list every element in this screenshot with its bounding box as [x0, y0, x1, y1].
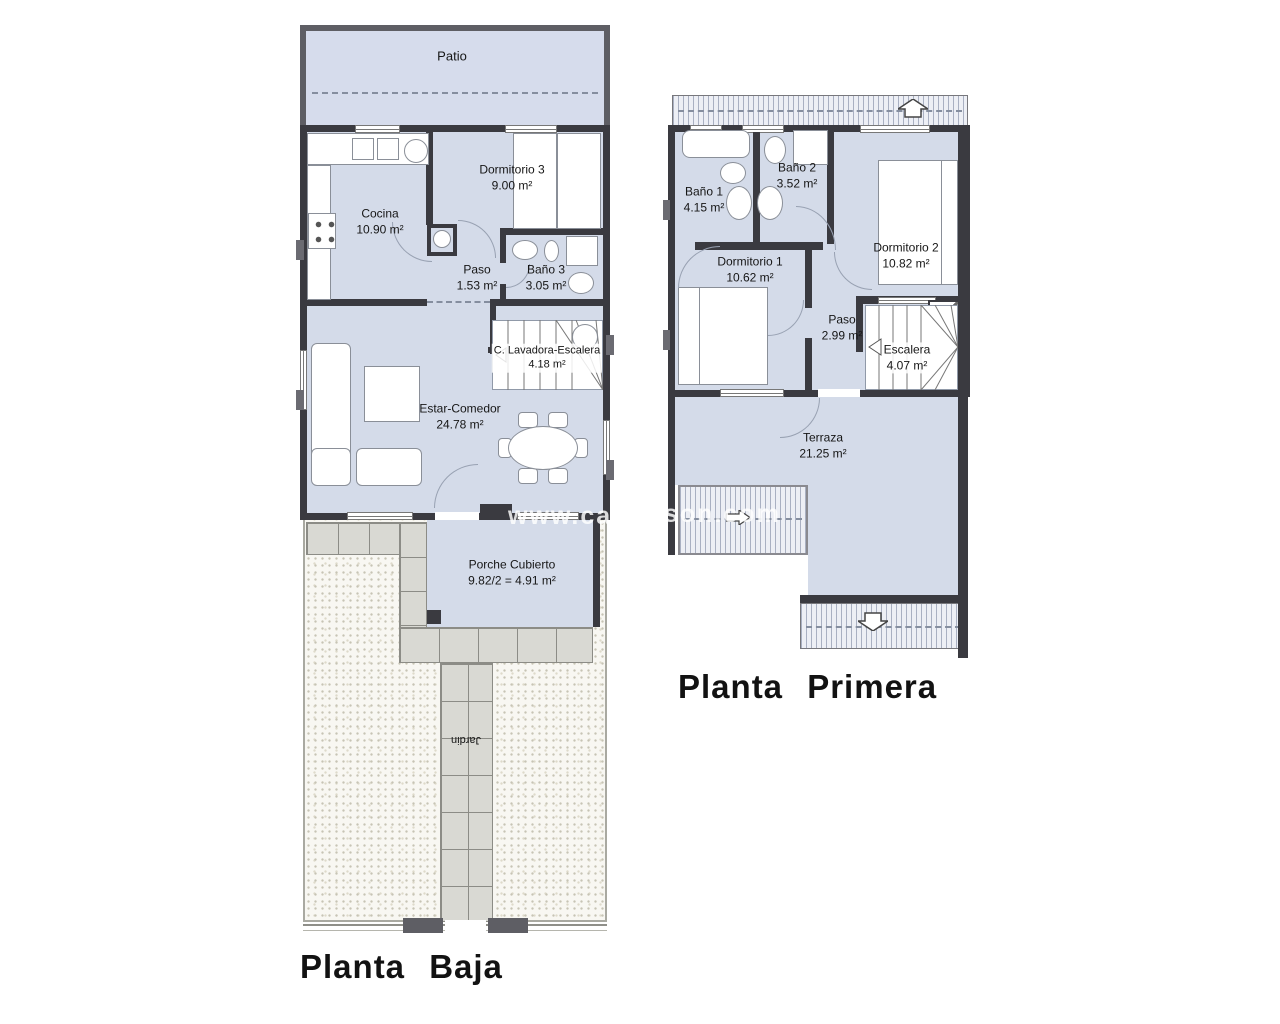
- gate-opening: [445, 920, 486, 931]
- door-opening: [818, 389, 860, 397]
- room-label-bano-3: Baño 3 3.05 m²: [526, 262, 567, 293]
- chair: [518, 468, 538, 484]
- boiler: [433, 230, 451, 248]
- sink: [726, 186, 752, 220]
- toilet: [568, 272, 594, 294]
- wall-pillar: [663, 200, 670, 220]
- patio-dashed-line: [312, 92, 598, 94]
- coffee-table: [364, 366, 420, 422]
- room-label-escalera: Escalera 4.07 m²: [882, 342, 933, 373]
- wall: [805, 250, 812, 308]
- wall: [958, 125, 968, 658]
- room-name: Paso: [822, 312, 863, 328]
- wall: [668, 397, 675, 555]
- gate-post: [488, 918, 528, 933]
- wall-pillar: [296, 390, 304, 410]
- patio-room: [300, 25, 610, 131]
- room-label-dormitorio-2: Dormitorio 2 10.82 m²: [873, 240, 938, 271]
- window: [720, 389, 784, 397]
- room-name: Dormitorio 2: [873, 240, 938, 256]
- kitchen-sink: [377, 138, 399, 160]
- wall: [593, 520, 600, 627]
- room-area: 2.99 m²: [822, 328, 863, 344]
- dining-table: [508, 426, 578, 470]
- wall: [307, 299, 427, 306]
- watermark-text: son.com: [664, 500, 781, 529]
- room-label-dormitorio-3: Dormitorio 3 9.00 m²: [479, 162, 544, 193]
- room-name: Dormitorio 1: [717, 254, 782, 270]
- planta-baja-title: Planta Baja: [300, 948, 503, 986]
- wall-pillar: [663, 330, 670, 350]
- room-name: Jardin: [451, 733, 481, 747]
- room-label-paso: Paso 2.99 m²: [822, 312, 863, 343]
- wall: [490, 299, 603, 306]
- armchair: [311, 448, 351, 486]
- shower: [566, 236, 598, 266]
- gate-post: [403, 918, 443, 933]
- room-name: Patio: [437, 49, 467, 66]
- bathtub: [682, 130, 750, 158]
- room-name: Baño 1: [684, 184, 725, 200]
- room-name: Paso: [457, 262, 498, 278]
- room-area: 9.82/2 = 4.91 m²: [468, 573, 556, 589]
- room-name: Escalera: [884, 342, 931, 358]
- up-arrow-icon: [898, 99, 928, 118]
- room-label-patio: Patio: [437, 49, 467, 66]
- washing-machine: [404, 139, 428, 163]
- room-area: 21.25 m²: [799, 446, 846, 462]
- room-area: 4.15 m²: [684, 200, 725, 216]
- kitchen-sink: [352, 138, 374, 160]
- window: [742, 125, 784, 133]
- door-opening: [435, 512, 479, 520]
- stove: [308, 213, 336, 249]
- room-area: 3.05 m²: [526, 278, 567, 294]
- room-label-jardin: Jardin: [451, 733, 481, 747]
- room-label-lavadora-escalera: C. Lavadora-Escalera 4.18 m²: [492, 344, 602, 373]
- room-area: 3.52 m²: [777, 176, 818, 192]
- room-area: 24.78 m²: [419, 417, 500, 433]
- floorplan-canvas: Patio Cocina 10.90 m² Dormitorio 3 9.00 …: [0, 0, 1280, 1024]
- down-arrow-icon: [858, 612, 888, 631]
- room-name: Porche Cubierto: [468, 557, 556, 573]
- room-name: Dormitorio 3: [479, 162, 544, 178]
- room-area: 10.82 m²: [873, 256, 938, 272]
- sink: [512, 240, 538, 260]
- room-label-paso: Paso 1.53 m²: [457, 262, 498, 293]
- wall: [800, 595, 963, 603]
- watermark-text: www.cas: [508, 502, 628, 531]
- bidet: [544, 240, 559, 262]
- planta-primera-title: Planta Primera: [678, 668, 937, 706]
- chair: [548, 468, 568, 484]
- room-area: 10.90 m²: [356, 222, 403, 238]
- wall-pillar: [296, 240, 304, 260]
- tiled-path: [440, 663, 493, 922]
- room-name: C. Lavadora-Escalera: [494, 344, 600, 358]
- room-area: 4.07 m²: [884, 358, 931, 374]
- window: [347, 512, 413, 520]
- room-area: 1.53 m²: [457, 278, 498, 294]
- room-label-porche: Porche Cubierto 9.82/2 = 4.91 m²: [468, 557, 556, 588]
- room-name: Baño 3: [526, 262, 567, 278]
- room-name: Baño 2: [777, 160, 818, 176]
- room-area: 4.18 m²: [494, 358, 600, 372]
- room-label-estar-comedor: Estar-Comedor 24.78 m²: [419, 401, 500, 432]
- window: [860, 125, 930, 133]
- wall: [805, 338, 812, 390]
- wall: [500, 235, 506, 263]
- room-name: Estar-Comedor: [419, 401, 500, 417]
- room-name: Cocina: [356, 206, 403, 222]
- room-label-cocina: Cocina 10.90 m²: [356, 206, 403, 237]
- room-name: Terraza: [799, 430, 846, 446]
- room-label-dormitorio-1: Dormitorio 1 10.62 m²: [717, 254, 782, 285]
- wall-pillar: [606, 460, 614, 480]
- toilet: [720, 162, 746, 184]
- wall-pillar: [606, 335, 614, 355]
- wall: [500, 228, 603, 235]
- wall-opening-dashed: [427, 301, 490, 303]
- room-label-bano-2: Baño 2 3.52 m²: [777, 160, 818, 191]
- terraza-room: [808, 485, 958, 597]
- room-label-bano-1: Baño 1 4.15 m²: [684, 184, 725, 215]
- window: [355, 125, 400, 133]
- room-area: 10.62 m²: [717, 270, 782, 286]
- window: [505, 125, 557, 133]
- wall: [753, 132, 760, 248]
- room-label-terraza: Terraza 21.25 m²: [799, 430, 846, 461]
- room-area: 9.00 m²: [479, 178, 544, 194]
- wall-pillar: [427, 610, 441, 624]
- tiled-path: [399, 627, 593, 663]
- bed: [678, 287, 768, 385]
- sofa: [356, 448, 422, 486]
